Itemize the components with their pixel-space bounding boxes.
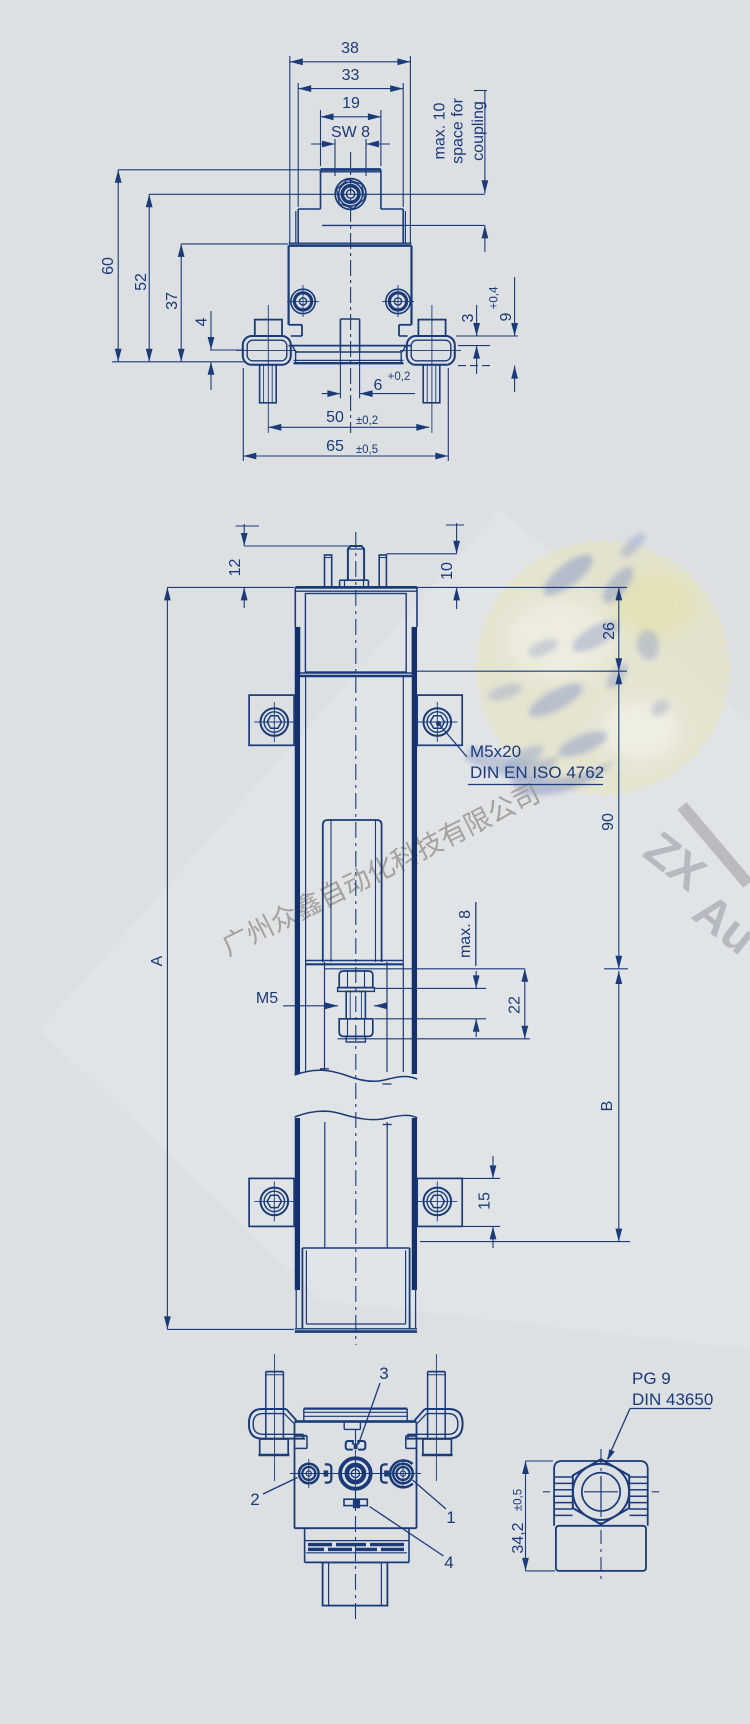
svg-text:50: 50 xyxy=(326,409,344,426)
svg-text:4: 4 xyxy=(444,1553,453,1572)
svg-text:DIN 43650: DIN 43650 xyxy=(632,1390,713,1409)
svg-text:38: 38 xyxy=(341,40,359,57)
svg-text:SW 8: SW 8 xyxy=(331,124,370,141)
svg-text:coupling: coupling xyxy=(470,101,487,161)
svg-text:4: 4 xyxy=(194,317,211,326)
svg-text:M5: M5 xyxy=(256,990,278,1007)
svg-text:±0,5: ±0,5 xyxy=(513,1489,525,1511)
svg-text:15: 15 xyxy=(477,1192,494,1210)
svg-text:60: 60 xyxy=(100,257,117,275)
svg-text:10: 10 xyxy=(439,562,456,580)
svg-text:65: 65 xyxy=(326,438,344,455)
svg-text:2: 2 xyxy=(250,1490,259,1509)
svg-text:26: 26 xyxy=(601,622,618,640)
svg-text:12: 12 xyxy=(227,559,244,577)
svg-text:1: 1 xyxy=(446,1508,455,1527)
svg-text:3: 3 xyxy=(460,313,477,322)
svg-text:33: 33 xyxy=(342,67,360,84)
svg-text:B: B xyxy=(599,1101,616,1112)
svg-text:3: 3 xyxy=(379,1364,388,1383)
svg-text:max. 10: max. 10 xyxy=(431,102,448,159)
svg-text:+0,2: +0,2 xyxy=(388,371,411,383)
svg-text:19: 19 xyxy=(342,95,360,112)
svg-text:DIN EN ISO 4762: DIN EN ISO 4762 xyxy=(470,763,604,782)
svg-text:6: 6 xyxy=(374,377,383,394)
svg-text:max. 8: max. 8 xyxy=(457,910,474,958)
svg-text:A: A xyxy=(149,955,166,966)
svg-text:±0,5: ±0,5 xyxy=(356,444,378,456)
svg-text:PG 9: PG 9 xyxy=(632,1369,671,1388)
svg-text:space for: space for xyxy=(450,97,467,163)
svg-text:M5x20: M5x20 xyxy=(470,742,521,761)
svg-text:52: 52 xyxy=(133,273,150,291)
svg-text:22: 22 xyxy=(507,996,524,1014)
svg-text:34,2: 34,2 xyxy=(510,1522,527,1553)
svg-text:+0,4: +0,4 xyxy=(489,286,501,309)
svg-text:37: 37 xyxy=(164,292,181,310)
svg-text:9: 9 xyxy=(498,312,515,321)
svg-text:90: 90 xyxy=(600,813,617,831)
svg-text:±0,2: ±0,2 xyxy=(356,415,378,427)
